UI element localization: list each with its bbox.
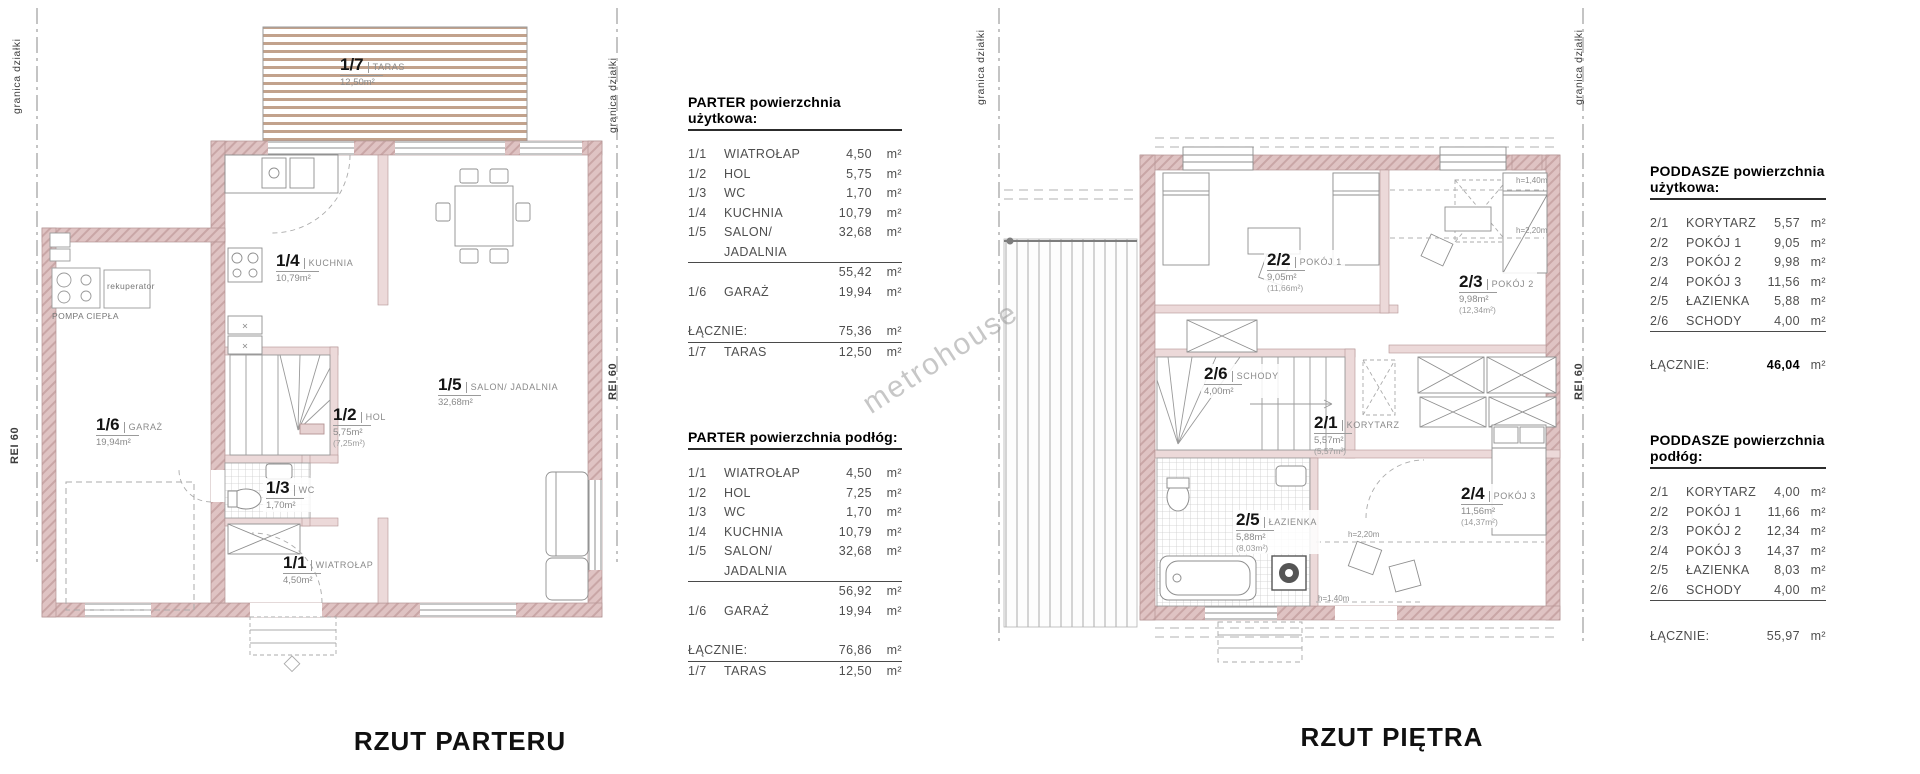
rei-60-label: REI 60	[606, 363, 620, 400]
table-row: 1/6GARAŻ19,94m²	[688, 283, 902, 303]
parter-stairs	[230, 355, 330, 455]
parter-title: RZUT PARTERU	[330, 726, 590, 757]
room-label-pokoj2: 2/3POKÓJ 2 9,98m² (12,34m²)	[1456, 272, 1537, 316]
table-row: 2/6SCHODY4,00m²	[1650, 581, 1826, 602]
room-label-pokoj3: 2/4POKÓJ 3 11,56m² (14,37m²)	[1458, 484, 1539, 528]
table-row: 1/3WC1,70m²	[688, 184, 902, 204]
table-row: 55,42m²	[688, 263, 902, 283]
plot-boundary-label: granica działki	[10, 38, 24, 114]
table-row: 56,92m²	[688, 582, 902, 602]
table-row: 2/5ŁAZIENKA8,03m²	[1650, 561, 1826, 581]
rekuperator-label: rekuperator	[107, 281, 155, 291]
sofa	[546, 472, 588, 600]
table-row: 2/3POKÓJ 212,34m²	[1650, 522, 1826, 542]
table-title: PODDASZE powierzchnia podłóg:	[1650, 432, 1826, 469]
height-note: h=2,20m	[1516, 226, 1547, 235]
table-row: 2/6SCHODY4,00m²	[1650, 312, 1826, 333]
room-label-wiatrolap: 1/1WIATROŁAP 4,50m²	[283, 554, 373, 586]
room-label-hol: 1/2HOL 5,75m² (7,25m²)	[333, 406, 386, 448]
table-row: 2/1KORYTARZ4,00m²	[1650, 483, 1826, 503]
heatpump-equipment	[50, 233, 150, 308]
floorplan-sheet: granica działki granica działki granica …	[0, 0, 1920, 774]
room-label-garaz: 1/6GARAŻ 19,94m²	[96, 416, 163, 448]
pietro-door-arc	[1366, 460, 1424, 518]
pietro-title: RZUT PIĘTRA	[1262, 722, 1522, 753]
garage-car-space	[66, 482, 194, 610]
table-title: PARTER powierzchnia podłóg:	[688, 429, 902, 450]
table-row: 2/2POKÓJ 19,05m²	[1650, 234, 1826, 254]
height-note: h=1,40m	[1318, 594, 1349, 603]
table-row: 1/4KUCHNIA10,79m²	[688, 523, 902, 543]
table-row: 1/1WIATROŁAP4,50m²	[688, 464, 902, 484]
room-label-schody: 2/6SCHODY 4,00m²	[1201, 364, 1282, 398]
room-label-lazienka: 2/5ŁAZIENKA 5,88m² (8,03m²)	[1233, 510, 1320, 554]
table-row: 2/2POKÓJ 111,66m²	[1650, 503, 1826, 523]
table-total-row: ŁĄCZNIE:76,86m²	[688, 641, 902, 662]
plot-boundary-label: granica działki	[1572, 29, 1586, 105]
pompa-ciepla-label: POMPA CIEPŁA	[52, 311, 119, 321]
room-label-kuchnia: 1/4KUCHNIA 10,79m²	[276, 252, 353, 284]
table-parter-uzytkowa: PARTER powierzchnia użytkowa: 1/1WIATROŁ…	[688, 94, 902, 362]
table-row: 2/5ŁAZIENKA5,88m²	[1650, 292, 1826, 312]
table-row: 2/4POKÓJ 311,56m²	[1650, 273, 1826, 293]
table-row: 1/7TARAS12,50m²	[688, 662, 902, 682]
room-label-wc: 1/3WC 1,70m²	[263, 478, 318, 512]
rei-60-label: REI 60	[1572, 363, 1586, 400]
table-total-row: ŁĄCZNIE:75,36m²	[688, 322, 902, 343]
dining-set	[436, 169, 530, 263]
pietro-plan	[1004, 138, 1560, 662]
room-label-korytarz: 2/1KORYTARZ 5,57m² (5,57m²)	[1314, 414, 1400, 456]
roof-slope	[1004, 238, 1137, 628]
table-total-row: ŁĄCZNIE:55,97m²	[1650, 627, 1826, 647]
table-row: 1/5SALON/ JADALNIA32,68m²	[688, 223, 902, 263]
table-poddasze-uzytkowa: PODDASZE powierzchnia użytkowa: 2/1KORYT…	[1650, 163, 1826, 376]
table-row: 2/3POKÓJ 29,98m²	[1650, 253, 1826, 273]
height-note: h=1,40m	[1516, 176, 1547, 185]
room-label-salon: 1/5SALON/ JADALNIA 32,68m²	[438, 376, 558, 408]
table-row: 1/5SALON/ JADALNIA32,68m²	[688, 542, 902, 582]
table-row: 1/3WC1,70m²	[688, 503, 902, 523]
floor-plan-drawing	[0, 0, 1920, 774]
table-row: 1/2HOL7,25m²	[688, 484, 902, 504]
table-row: 2/4POKÓJ 314,37m²	[1650, 542, 1826, 562]
table-row: 1/1WIATROŁAP4,50m²	[688, 145, 902, 165]
table-row: 1/6GARAŻ19,94m²	[688, 602, 902, 622]
table-total-row: ŁĄCZNIE:46,04m²	[1650, 356, 1826, 376]
room-label-pokoj1: 2/2POKÓJ 1 9,05m² (11,66m²)	[1264, 250, 1345, 294]
entrance-steps	[250, 617, 336, 671]
wardrobe-box	[228, 524, 300, 554]
table-row: 1/4KUCHNIA10,79m²	[688, 204, 902, 224]
plot-boundary-label: granica działki	[606, 57, 620, 133]
table-title: PODDASZE powierzchnia użytkowa:	[1650, 163, 1826, 200]
height-note: h=2,20m	[1348, 530, 1379, 539]
rei-60-label: REI 60	[8, 427, 22, 464]
table-parter-podlog: PARTER powierzchnia podłóg: 1/1WIATROŁAP…	[688, 429, 902, 681]
table-row: 1/7TARAS12,50m²	[688, 343, 902, 363]
table-poddasze-podlog: PODDASZE powierzchnia podłóg: 2/1KORYTAR…	[1650, 432, 1826, 647]
table-row: 2/1KORYTARZ5,57m²	[1650, 214, 1826, 234]
plot-boundary-label: granica działki	[974, 29, 988, 105]
table-title: PARTER powierzchnia użytkowa:	[688, 94, 902, 131]
room-label-taras: 1/7TARAS 12,50m²	[340, 56, 405, 88]
table-row: 1/2HOL5,75m²	[688, 165, 902, 185]
